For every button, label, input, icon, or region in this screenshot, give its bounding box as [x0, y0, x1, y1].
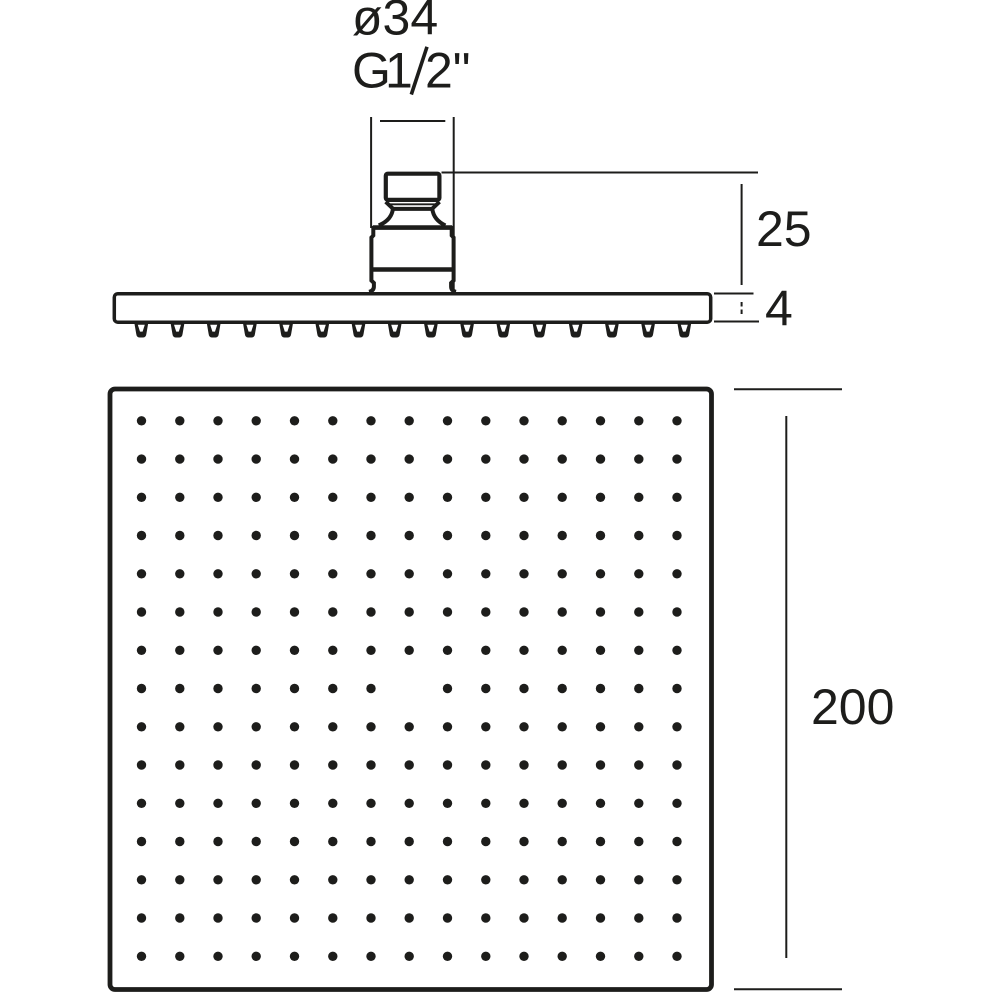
svg-text:4: 4 — [765, 281, 793, 337]
svg-text:1: 1 — [385, 43, 413, 99]
svg-text:200: 200 — [811, 679, 894, 735]
svg-text:2": 2" — [425, 43, 471, 99]
svg-text:ø34: ø34 — [352, 0, 438, 46]
svg-text:25: 25 — [756, 201, 812, 257]
